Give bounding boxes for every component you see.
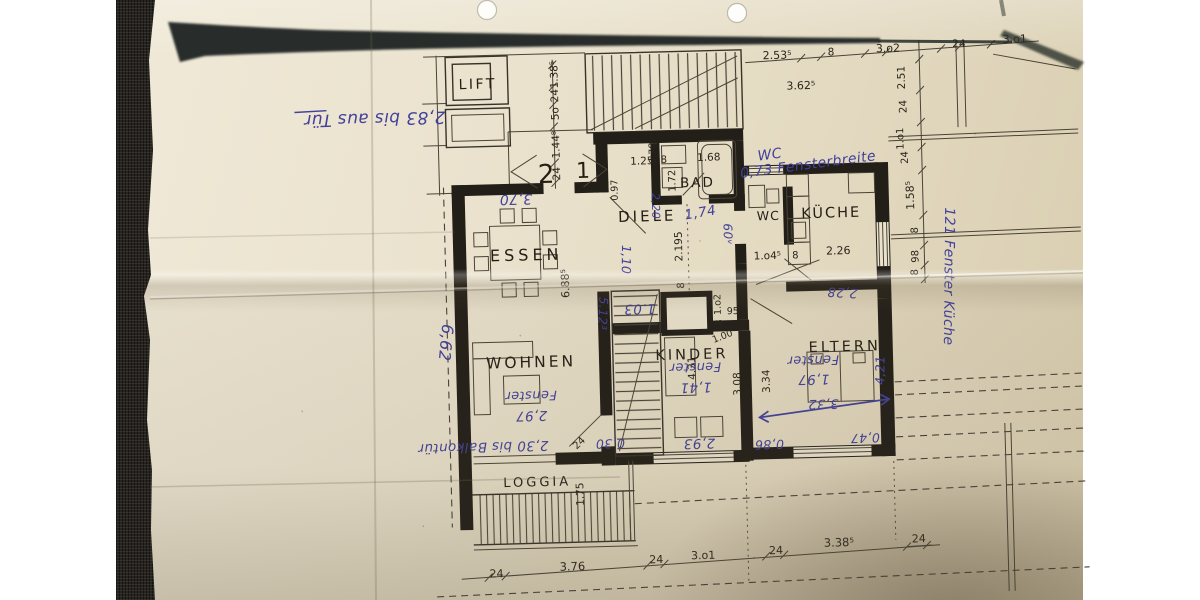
dim-label: 95 — [727, 306, 739, 317]
note-label: 0,47 — [850, 430, 880, 446]
building-staircase-upper — [585, 50, 743, 133]
room-label-essen: ESSEN — [490, 245, 563, 266]
dim-label: 1.o1 — [895, 127, 907, 149]
dim-label: 24 — [897, 99, 909, 113]
note-label: 4,21 — [872, 355, 887, 385]
dim-label: 2.26 — [826, 244, 851, 258]
note-label: 2,28 — [827, 283, 858, 300]
dim-label: 0.97 — [609, 179, 621, 200]
photo-of-floor-plan: 1.38⁵ 24 5o 1.44⁸ 24 0.78 1.25 8 1.68 8 … — [0, 0, 1200, 600]
dim-label: 1.o4⁵ — [754, 250, 782, 263]
dim-label: 8 — [792, 250, 799, 261]
plan-sheet: 1.38⁵ 24 5o 1.44⁸ 24 0.78 1.25 8 1.68 8 … — [292, 31, 1090, 600]
note-label: 6,62 — [435, 323, 457, 362]
room-label-lift: LIFT — [458, 76, 497, 93]
note-label: 1,41 — [680, 379, 712, 396]
room-label-bad: BAD — [680, 175, 715, 192]
dim-label: 5o — [549, 107, 561, 120]
dim-label: 24 — [769, 544, 783, 557]
room-label-loggia: LOGGIA — [503, 474, 571, 491]
dim-label: 3.38⁵ — [824, 535, 855, 550]
note-label: 1.03 — [624, 300, 656, 317]
note-label: 2,93 — [683, 435, 715, 452]
dim-label: 1.68 — [697, 151, 721, 164]
dim-label: 2.51 — [895, 66, 908, 90]
dim-label: 2.195 — [673, 231, 686, 261]
note-label: 2,30 bis Balkontür — [417, 437, 549, 456]
dim-label: 1.44⁸ — [550, 131, 563, 159]
lift-shaft — [444, 56, 510, 148]
flat-number-1: 1 — [576, 159, 591, 184]
dim-label: 24 — [549, 89, 561, 103]
dim-label: 3.o2 — [876, 42, 901, 56]
dim-label: 3.62⁵ — [786, 79, 815, 93]
dim-label: 8 1.72 — [667, 170, 679, 202]
note-label: 1,97 — [798, 371, 830, 388]
dim-label: 1.75 — [574, 482, 587, 506]
dim-label: 1.38⁵ — [548, 61, 561, 89]
dim-label: 1.25 — [630, 155, 654, 168]
note-label: 60ᵛ — [720, 223, 735, 245]
note-label: Fenster — [786, 351, 839, 367]
dim-label: 1.o2 — [712, 294, 724, 315]
punch-holes — [478, 1, 747, 23]
dim-label: 8 — [660, 155, 667, 166]
room-label-wohnen: WOHNEN — [486, 352, 577, 372]
note-label: 1,74 — [683, 202, 717, 223]
room-label-diele: DIELE — [618, 207, 677, 227]
dim-label: 3.34 — [760, 369, 773, 393]
dim-label: 24 — [912, 532, 926, 545]
dim-label: 98 — [910, 250, 921, 263]
dim-label: 8 — [828, 46, 835, 58]
note-label: 3,70 — [499, 190, 532, 207]
room-label-kueche: KÜCHE — [801, 203, 861, 223]
flat-number-2: 2 — [538, 160, 555, 190]
dim-label: 8 — [910, 227, 921, 234]
note-label: Fenster — [668, 358, 721, 374]
note-label: 0,30 — [595, 436, 625, 452]
note-label: 1,10 — [619, 245, 634, 275]
room-label-wc: WC — [757, 208, 780, 224]
dim-label: 3.08 — [731, 372, 744, 396]
dim-label: 3.o1 — [691, 549, 716, 563]
dim-label: 3.76 — [559, 559, 585, 574]
dim-label: 24 — [952, 38, 966, 50]
note-label: 5.12³ — [595, 296, 610, 330]
dim-label: 8 — [714, 319, 725, 325]
note-label: Fenster — [504, 387, 557, 403]
floor-plan-drawing: 1.38⁵ 24 5o 1.44⁸ 24 0.78 1.25 8 1.68 8 … — [0, 0, 1200, 600]
punch-hole — [478, 1, 497, 20]
dim-label: 24 — [900, 151, 911, 164]
punch-hole — [728, 4, 747, 23]
dim-label: 24 — [571, 435, 588, 452]
dim-label: 6.88⁵ — [559, 269, 573, 298]
note-label: 0,86 — [754, 437, 784, 453]
dim-label: 24 — [489, 567, 503, 580]
dim-label: 1.58⁵ — [903, 181, 917, 210]
note-label: 2,20 — [649, 193, 663, 219]
duct-shaft — [663, 294, 710, 333]
dim-label: 24 — [649, 553, 663, 566]
dim-label: 2.53⁵ — [762, 48, 791, 62]
note-label: 2,97 — [515, 407, 547, 424]
